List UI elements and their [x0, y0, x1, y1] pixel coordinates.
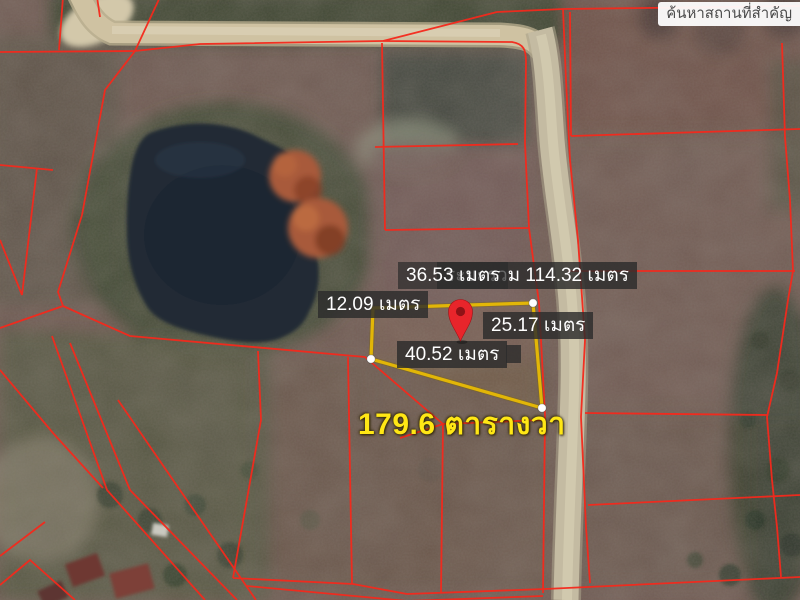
search-input[interactable]: ค้นหาสถานที่สำคัญ: [658, 2, 800, 26]
vertex-handle[interactable]: [529, 299, 537, 307]
map-canvas[interactable]: ระยะรวม 114.32 เมตร 36.53 เมตร 12.09 เมต…: [0, 0, 800, 600]
parcel-area-label: 179.6 ตารางวา: [358, 401, 566, 448]
right-edge-length-label: 25.17 เมตร: [483, 312, 593, 339]
left-edge-length-label: 12.09 เมตร: [318, 291, 428, 318]
label-fragment: [506, 345, 521, 363]
location-pin-icon[interactable]: [440, 290, 484, 346]
top-edge-length-label: 36.53 เมตร: [398, 262, 508, 289]
vertex-handle[interactable]: [367, 355, 375, 363]
